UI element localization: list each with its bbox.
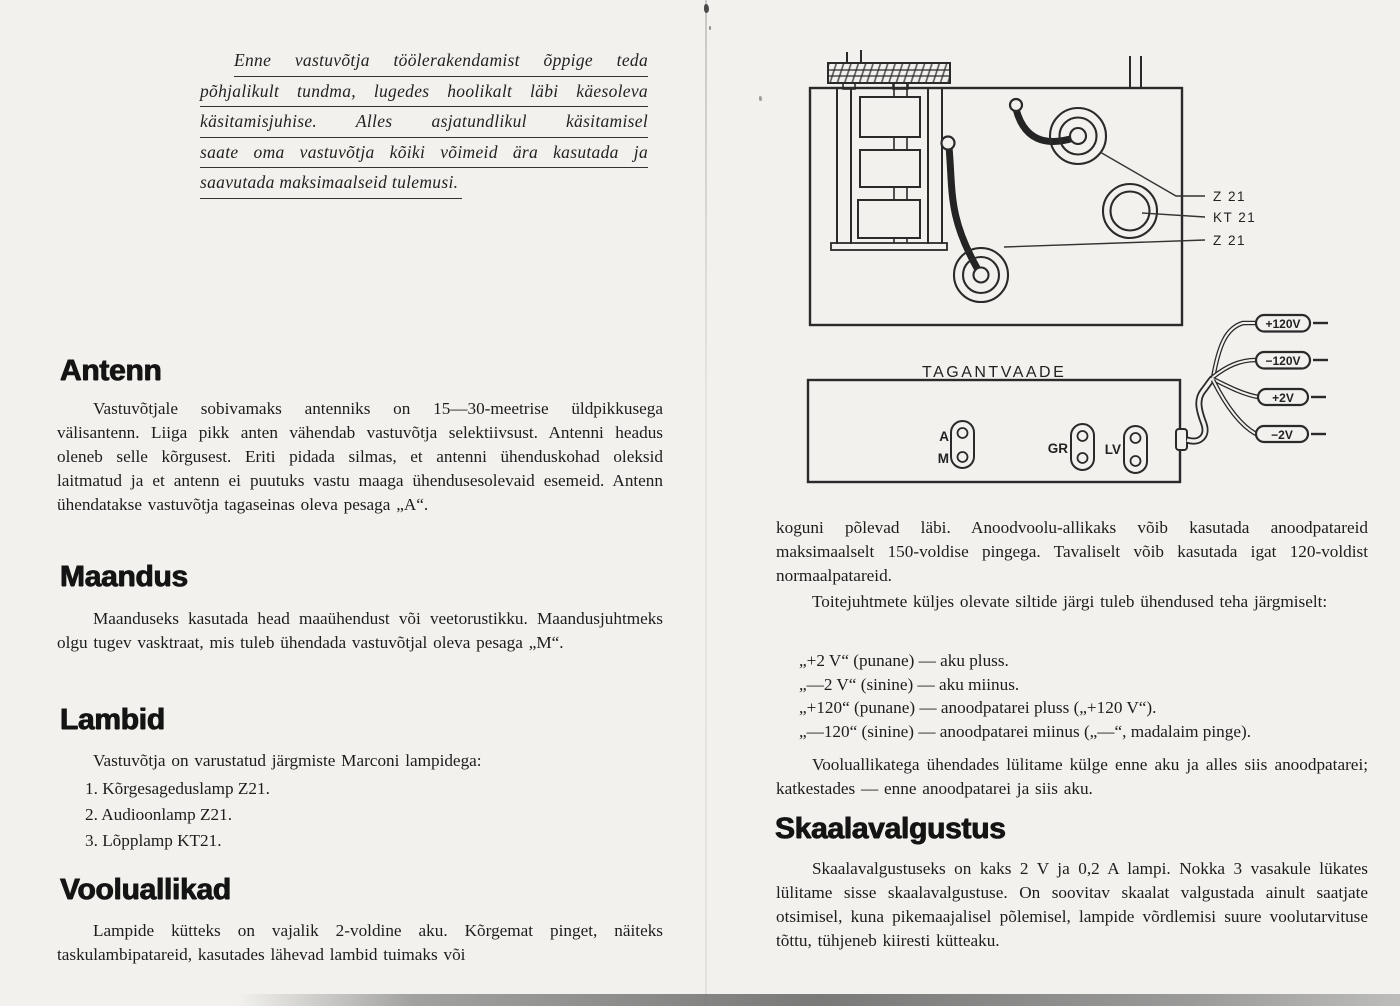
chassis-wires <box>949 109 1074 268</box>
socket-hole-lv2 <box>1131 456 1141 466</box>
tag-label-minus120v: −120V <box>1265 354 1300 368</box>
cable-grommet <box>1176 429 1187 450</box>
leader-line <box>1004 240 1205 247</box>
tube-sockets <box>954 108 1157 302</box>
tube-socket-ring <box>1111 192 1150 231</box>
capacitor-plate <box>858 200 920 238</box>
tag-label-plus2v: +2V <box>1272 391 1294 405</box>
tuning-capacitor <box>831 83 947 250</box>
socket-label-gr: GR <box>1048 441 1069 456</box>
socket-hole-gr2 <box>1078 453 1088 463</box>
wire <box>1016 109 1074 141</box>
cable-tags: +120V −120V +2V −2V <box>1256 315 1328 442</box>
socket-hole-m <box>958 452 968 462</box>
back-view-title: TAGANTVAADE <box>922 364 1066 381</box>
socket-hole-a <box>958 428 968 438</box>
radio-diagram: Z 21 KT 21 Z 21 TAGANTVAADE A M GR LV <box>0 0 1400 1006</box>
capacitor-base <box>831 243 947 250</box>
tube-label-kt21: KT 21 <box>1213 210 1256 225</box>
socket-hole-lv1 <box>1131 433 1141 443</box>
manual-spread: Enne vastuvõtja töölerakendamist õppige … <box>0 0 1400 1006</box>
tube-socket-hole <box>1070 128 1086 144</box>
socket-label-m: M <box>938 451 949 466</box>
socket-label-a: A <box>939 429 949 444</box>
cable-bundle <box>1176 378 1213 450</box>
wire-terminal <box>1010 99 1022 111</box>
leader-line <box>1100 152 1205 196</box>
leader-line <box>1142 213 1205 217</box>
capacitor-plate <box>860 97 920 137</box>
wire-minus120 <box>1213 360 1256 377</box>
wire-terminal <box>942 137 955 150</box>
tag-label-minus2v: −2V <box>1271 428 1293 442</box>
capacitor-plate <box>860 150 920 187</box>
tube-socket-hole <box>974 268 989 283</box>
tag-label-plus120v: +120V <box>1265 317 1300 331</box>
socket-label-lv: LV <box>1105 442 1121 457</box>
lead-wires <box>1213 323 1258 434</box>
dial-bar <box>828 63 950 83</box>
socket-hole-gr1 <box>1078 431 1088 441</box>
tube-label-z21-bottom: Z 21 <box>1213 233 1246 248</box>
tube-label-z21-top: Z 21 <box>1213 189 1246 204</box>
